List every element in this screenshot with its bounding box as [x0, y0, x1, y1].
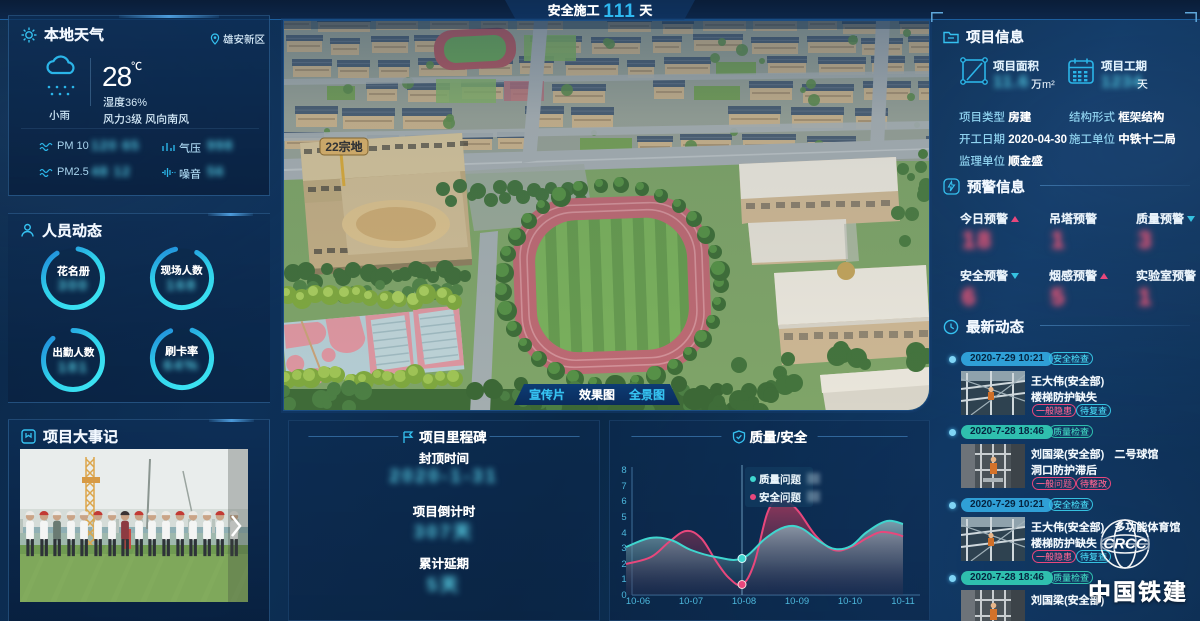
svg-text:2: 2 — [621, 559, 626, 570]
svg-text:8: 8 — [621, 465, 626, 476]
svg-text:5: 5 — [621, 512, 626, 523]
svg-text:3: 3 — [621, 543, 626, 554]
svg-text:CRCC: CRCC — [1103, 536, 1147, 553]
svg-text:1: 1 — [621, 574, 626, 585]
svg-text:6: 6 — [621, 496, 626, 507]
svg-text:4: 4 — [621, 528, 626, 539]
svg-text:10-06: 10-06 — [626, 596, 650, 607]
svg-text:安全问题: 安全问题 — [759, 491, 801, 504]
svg-text:质量问题: 质量问题 — [758, 473, 801, 486]
svg-text:7: 7 — [621, 481, 626, 492]
svg-text:10-10: 10-10 — [838, 596, 862, 607]
svg-text:10-09: 10-09 — [785, 596, 809, 607]
svg-text:10-11: 10-11 — [891, 596, 915, 607]
svg-text:10-07: 10-07 — [679, 596, 703, 607]
svg-text:10-08: 10-08 — [732, 596, 756, 607]
